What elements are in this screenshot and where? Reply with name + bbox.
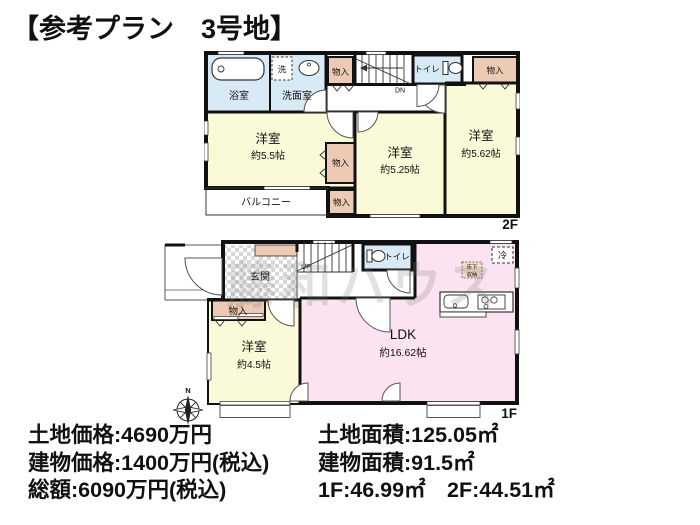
label-bath: 浴室 [229, 89, 249, 102]
floor-plan-2f: 浴室 洗面室 洗 物入 DN トイレ 物入 洋室 約5.5帖 物入 洋室 約5.… [204, 51, 520, 235]
land-area: 土地面積:125.05㎡ [318, 422, 555, 450]
label-room2: 洋室 [387, 145, 412, 160]
label-washer: 洗 [278, 65, 287, 75]
label-washroom: 洗面室 [282, 89, 312, 102]
label-closet-2f-4: 物入 [333, 198, 351, 208]
terrace-step-west [220, 406, 290, 418]
floor-area: 1F:46.99㎡ 2F:44.51㎡ [318, 477, 555, 505]
toilet-icon-2f [443, 62, 462, 75]
pricing-left-column: 土地価格:4690万円 建物価格:1400万円(税込) 総額:6090万円(税込… [28, 422, 269, 505]
label-closet-2f-3: 物入 [332, 158, 350, 168]
pricing-right-column: 土地面積:125.05㎡ 建物面積:91.5㎡ 1F:46.99㎡ 2F:44.… [318, 422, 555, 505]
floor-label-2f: 2F [502, 217, 518, 232]
label-west-1f: 洋室 [241, 339, 266, 354]
label-ldk: LDK [390, 327, 416, 342]
compass-north-label: N [185, 386, 190, 395]
floor-plan-page: 【参考プラン 3号地】 [0, 0, 700, 525]
label-west-1f-size: 約4.5帖 [237, 358, 271, 371]
label-closet-2f-2: 物入 [486, 66, 504, 76]
label-stairs-dn: DN [395, 88, 405, 95]
label-balcony: バルコニー [241, 197, 291, 209]
label-room1-size: 約5.5帖 [251, 149, 285, 162]
label-room1: 洋室 [255, 131, 280, 146]
stairs-down-icon [356, 55, 411, 84]
label-room3: 洋室 [468, 128, 493, 143]
label-toilet-2f: トイレ [414, 64, 440, 74]
terrace-step-ldk [427, 406, 480, 418]
label-ldk-size: 約16.62帖 [379, 346, 427, 359]
watermark: 藤和ハウス [204, 246, 524, 310]
building-price: 建物価格:1400万円(税込) [28, 450, 269, 478]
label-room2-size: 約5.25帖 [380, 163, 419, 176]
page-title: 【参考プラン 3号地】 [12, 7, 297, 46]
land-price: 土地価格:4690万円 [28, 422, 269, 450]
compass-icon: N [173, 386, 203, 425]
label-room3-size: 約5.62帖 [461, 147, 500, 160]
floor-label-1f: 1F [501, 406, 517, 421]
building-area: 建物面積:91.5㎡ [318, 450, 555, 478]
total-price: 総額:6090万円(税込) [28, 477, 269, 505]
sink-icon [299, 61, 319, 76]
bathtub-icon [212, 58, 264, 80]
label-closet-2f-1: 物入 [332, 67, 350, 77]
